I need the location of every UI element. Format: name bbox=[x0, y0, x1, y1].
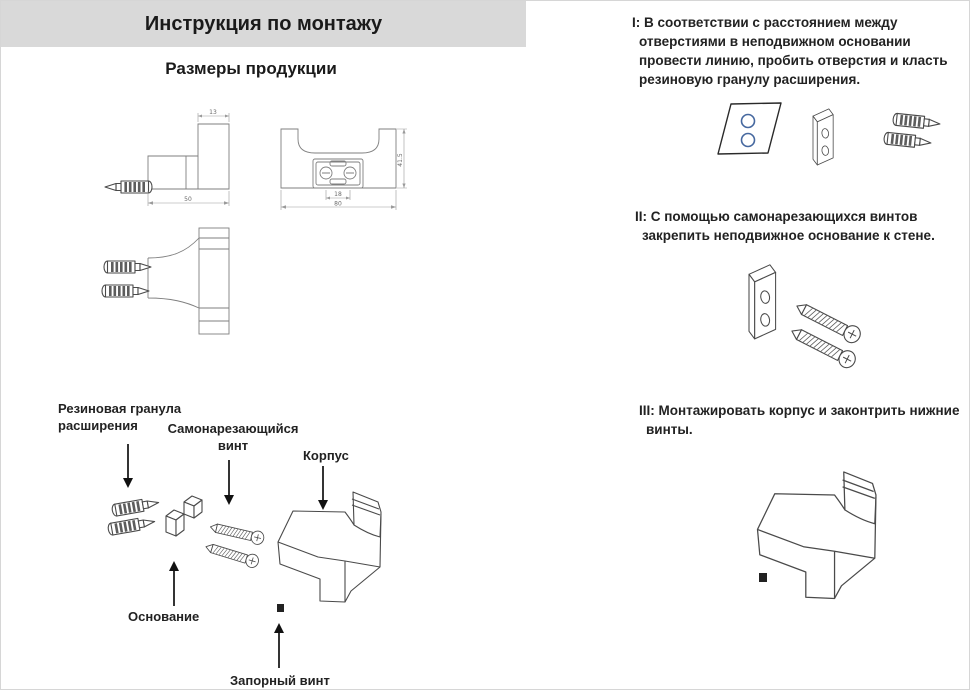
dimension-drawings: 13 50 41.5 18 bbox=[91, 106, 421, 226]
drill-hole bbox=[742, 115, 755, 128]
arrow-to-lock-screw bbox=[274, 623, 284, 668]
base-plate bbox=[749, 265, 776, 339]
anchor-icon bbox=[105, 181, 152, 193]
anchor-icon bbox=[104, 261, 151, 273]
dim-top-width: 13 bbox=[209, 109, 217, 116]
step-3-text: III: Монтажировать корпус и законтрить н… bbox=[639, 401, 970, 439]
anchor-icon bbox=[893, 113, 941, 130]
dim-bottom-width: 50 bbox=[184, 196, 192, 203]
arrow-to-base bbox=[169, 561, 179, 606]
dim-hole-spacing: 18 bbox=[334, 191, 342, 198]
dim-height: 41.5 bbox=[397, 153, 404, 167]
hook-body-part bbox=[758, 472, 876, 599]
drill-hole bbox=[742, 134, 755, 147]
label-base: Основание bbox=[128, 608, 199, 625]
arrow-to-anchors bbox=[123, 444, 133, 488]
lock-screw-square bbox=[759, 573, 767, 582]
step-3-illustration bbox=[736, 449, 951, 619]
label-screw: Самонарезающийся винт bbox=[167, 420, 299, 454]
base-plate bbox=[813, 109, 833, 165]
step-2-text: II: С помощью самонарезающихся винтов за… bbox=[635, 207, 970, 245]
top-view-drawing bbox=[91, 224, 331, 364]
callout-arrows bbox=[101, 436, 371, 686]
section-subtitle: Размеры продукции bbox=[1, 59, 501, 79]
arrow-to-body bbox=[318, 466, 328, 510]
step-1-illustration bbox=[701, 96, 956, 186]
arrow-to-screws bbox=[224, 460, 234, 505]
anchor-icon bbox=[102, 285, 149, 297]
label-lock-screw: Запорный винт bbox=[230, 672, 330, 689]
step-2-illustration bbox=[741, 256, 911, 376]
step-1-text: I: В соответствии с расстоянием между от… bbox=[632, 13, 970, 89]
front-view-drawing: 41.5 18 80 bbox=[281, 129, 407, 210]
side-view-drawing: 13 50 bbox=[105, 109, 229, 206]
dim-overall-width: 80 bbox=[334, 201, 342, 208]
anchor-icon bbox=[884, 132, 932, 149]
page-title: Инструкция по монтажу bbox=[1, 1, 526, 47]
instruction-sheet: Инструкция по монтажу Размеры продукции … bbox=[0, 0, 970, 690]
label-body: Корпус bbox=[303, 447, 349, 464]
